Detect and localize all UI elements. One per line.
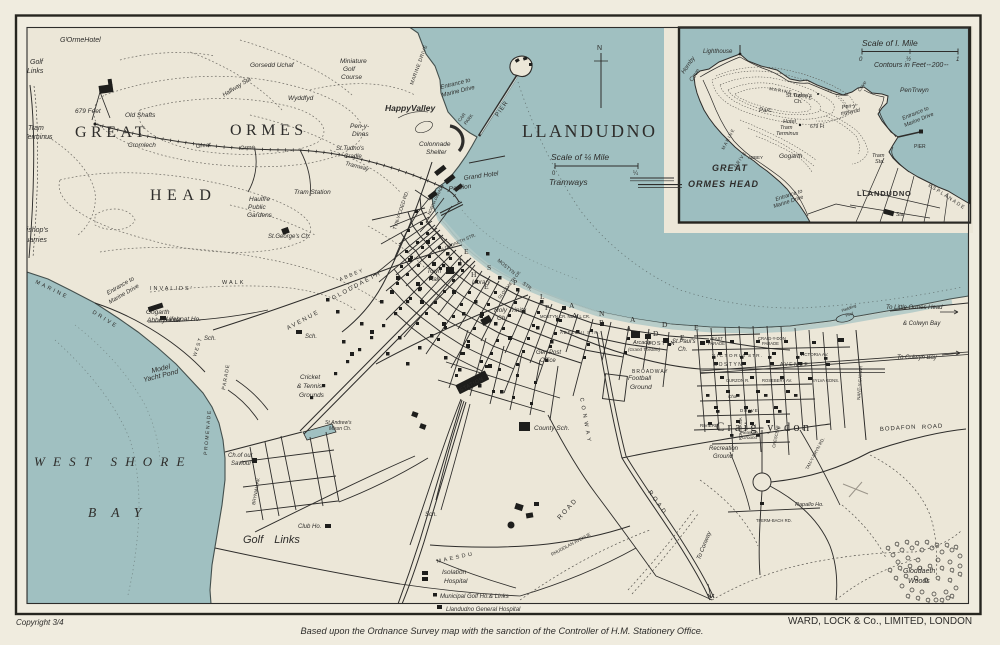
- svg-text:Ground: Ground: [713, 454, 734, 460]
- svg-text:MOSTYN CR. NEVILL CR.: MOSTYN CR. NEVILL CR.: [540, 314, 590, 319]
- svg-text:& Tennis: & Tennis: [297, 383, 323, 390]
- svg-text:Football: Football: [628, 375, 652, 382]
- svg-text:RIVIERE: RIVIERE: [700, 423, 718, 428]
- svg-text:Scale of ¼ Mile: Scale of ¼ Mile: [551, 152, 609, 162]
- svg-text:Gloddaeth: Gloddaeth: [903, 568, 935, 575]
- svg-text:TFERM-BACH RD.: TFERM-BACH RD.: [756, 518, 792, 523]
- svg-text:Miniature: Miniature: [340, 58, 367, 65]
- svg-text:HappyValley: HappyValley: [385, 103, 437, 113]
- svg-text:To Colwyn Bay: To Colwyn Bay: [897, 355, 938, 361]
- svg-text:Grounds: Grounds: [299, 392, 325, 399]
- svg-text:Colonnade: Colonnade: [419, 141, 451, 148]
- svg-text:Woods: Woods: [908, 578, 930, 585]
- svg-text:WALK: WALK: [222, 280, 245, 286]
- svg-text:PenTrwyn: PenTrwyn: [900, 87, 929, 94]
- svg-text:R: R: [599, 318, 604, 327]
- svg-text:Haulfre: Haulfre: [249, 196, 270, 203]
- svg-text:S: S: [487, 263, 491, 272]
- svg-text:Llandudno General Hospital: Llandudno General Hospital: [446, 607, 521, 613]
- svg-text:Scale of I. Mile: Scale of I. Mile: [862, 38, 918, 48]
- svg-text:679 Feet: 679 Feet: [75, 108, 102, 115]
- svg-text:GREAT: GREAT: [712, 163, 748, 173]
- svg-text:Sch.: Sch.: [204, 336, 216, 342]
- svg-text:Gorsedd Uchaf: Gorsedd Uchaf: [250, 62, 295, 69]
- svg-text:Recreation: Recreation: [709, 446, 739, 452]
- svg-text:Ground: Ground: [742, 435, 758, 440]
- svg-text:STR.: STR.: [748, 353, 763, 359]
- svg-text:Municipal Golf Ho.& Links: Municipal Golf Ho.& Links: [440, 594, 509, 600]
- svg-text:E: E: [464, 247, 469, 256]
- svg-text:AVENUE: AVENUE: [780, 362, 809, 368]
- svg-text:LLANDUDNO: LLANDUDNO: [857, 189, 912, 198]
- svg-text:HEAD: HEAD: [150, 187, 216, 204]
- svg-text:CURZON R.: CURZON R.: [726, 378, 749, 383]
- svg-text:Ch.of our: Ch.of our: [228, 453, 254, 459]
- svg-text:Gogarth: Gogarth: [779, 153, 803, 160]
- svg-text:Wyddfyd: Wyddfyd: [288, 95, 314, 102]
- svg-text:ADELPHI STR.: ADELPHI STR.: [560, 330, 601, 335]
- svg-text:A: A: [630, 315, 636, 324]
- svg-text:ORMES: ORMES: [230, 122, 308, 139]
- svg-text:Sch.: Sch.: [305, 334, 317, 340]
- svg-text:PIER: PIER: [914, 144, 926, 150]
- svg-text:N: N: [599, 309, 605, 318]
- svg-text:Rapallo Ho.: Rapallo Ho.: [795, 502, 824, 508]
- svg-text:Sta.: Sta.: [896, 212, 905, 218]
- svg-text:Ch.: Ch.: [794, 99, 803, 105]
- svg-text:To Little Ormes Head: To Little Ormes Head: [886, 305, 943, 311]
- svg-text:E: E: [694, 323, 699, 332]
- svg-text:Golf: Golf: [30, 59, 44, 66]
- svg-text:Saviour: Saviour: [231, 461, 252, 467]
- svg-text:Dinas: Dinas: [352, 131, 369, 138]
- svg-text:Cradle: Cradle: [344, 154, 362, 160]
- svg-text:Shelter: Shelter: [426, 149, 447, 156]
- svg-text:Copyright 3/4: Copyright 3/4: [16, 618, 64, 627]
- svg-text:Golf: Golf: [343, 66, 356, 73]
- svg-text:Tramways: Tramways: [549, 177, 588, 187]
- svg-text:Ch.: Ch.: [678, 347, 687, 353]
- svg-text:DRIVE: DRIVE: [740, 408, 759, 413]
- svg-text:A: A: [569, 301, 575, 310]
- svg-text:P: P: [545, 303, 549, 312]
- svg-text:Hall: Hall: [429, 277, 440, 283]
- svg-text:Town: Town: [427, 269, 442, 275]
- svg-text:Gardens: Gardens: [247, 212, 273, 219]
- svg-text:WEST SHORE: WEST SHORE: [34, 454, 193, 469]
- svg-text:MOSTYN: MOSTYN: [646, 341, 676, 347]
- svg-text:BROADWAY: BROADWAY: [632, 369, 669, 375]
- svg-text:Tram: Tram: [28, 125, 44, 132]
- svg-text:1: 1: [956, 57, 959, 63]
- svg-text:County Sch.: County Sch.: [534, 425, 570, 432]
- svg-text:SYLVA GDNS.: SYLVA GDNS.: [812, 378, 839, 383]
- svg-text:WARD, LOCK & Co., LIMITED, LON: WARD, LOCK & Co., LIMITED, LONDON: [788, 616, 972, 627]
- svg-text:Sta.: Sta.: [875, 159, 885, 165]
- svg-text:Lifeboat Ho.: Lifeboat Ho.: [166, 316, 201, 323]
- svg-text:T: T: [458, 257, 463, 266]
- svg-text:VICTORIA: VICTORIA: [712, 353, 747, 359]
- svg-text:ORMES HEAD: ORMES HEAD: [688, 179, 759, 189]
- svg-text:Contours in Feet -- 200 --: Contours in Feet -- 200 --: [874, 62, 949, 69]
- svg-text:Holy Trinity: Holy Trinity: [494, 307, 527, 314]
- svg-text:Cricket: Cricket: [300, 374, 321, 381]
- svg-text:Office: Office: [540, 358, 556, 364]
- svg-text:Public: Public: [248, 204, 266, 211]
- svg-text:Isolation: Isolation: [442, 569, 467, 576]
- svg-text:H: H: [471, 270, 477, 279]
- svg-text:ABBEY: ABBEY: [748, 155, 763, 160]
- svg-text:MOSTYN: MOSTYN: [713, 362, 743, 368]
- svg-text:A: A: [626, 324, 632, 333]
- svg-text:LLANDUDNO: LLANDUDNO: [522, 121, 657, 141]
- svg-text:Gogarth: Gogarth: [146, 309, 170, 316]
- svg-text:L: L: [540, 292, 545, 301]
- svg-text:GREAT: GREAT: [75, 124, 149, 141]
- svg-text:St.George's Ch.: St.George's Ch.: [268, 234, 311, 240]
- svg-text:Missn Ch.: Missn Ch.: [329, 426, 351, 432]
- svg-text:Pen-y-: Pen-y-: [350, 123, 370, 130]
- svg-text:Hospital: Hospital: [444, 578, 468, 585]
- svg-text:& Colwyn Bay: & Colwyn Bay: [903, 321, 941, 327]
- svg-text:Course: Course: [341, 74, 362, 81]
- svg-text:Parc.: Parc.: [759, 108, 773, 114]
- svg-text:N: N: [597, 45, 602, 52]
- svg-text:Cha.: Cha.: [728, 394, 738, 399]
- svg-text:Library: Library: [472, 280, 491, 286]
- svg-text:St.Tudno's: St.Tudno's: [336, 146, 364, 152]
- svg-text:Craig-y-don: Craig-y-don: [716, 420, 812, 434]
- svg-text:PARADE: PARADE: [762, 341, 779, 346]
- svg-text:679 Ft: 679 Ft: [810, 124, 825, 130]
- svg-text:INVALIDS': INVALIDS': [150, 286, 194, 292]
- svg-text:Orme: Orme: [240, 145, 256, 152]
- svg-text:Tram Station: Tram Station: [294, 189, 331, 196]
- svg-text:Based upon the Ordnance Survey: Based upon the Ordnance Survey map with …: [301, 626, 704, 636]
- svg-text:Lighthouse: Lighthouse: [703, 49, 733, 55]
- svg-text:BAY: BAY: [88, 505, 156, 520]
- svg-text:Golf Links: Golf Links: [243, 534, 300, 546]
- svg-text:Gen.Post: Gen.Post: [536, 350, 561, 356]
- svg-text:Club Ho.: Club Ho.: [298, 524, 321, 530]
- svg-text:VICTORIA AV.: VICTORIA AV.: [800, 352, 828, 357]
- svg-text:PARADE: PARADE: [708, 341, 725, 346]
- svg-text:Links: Links: [27, 68, 44, 75]
- svg-text:Old Shafts: Old Shafts: [125, 112, 156, 119]
- svg-text:Ground: Ground: [630, 384, 652, 391]
- svg-text:GᵗOrmeHotel: GᵗOrmeHotel: [60, 37, 101, 44]
- svg-text:Cromlech: Cromlech: [128, 142, 156, 149]
- svg-text:Terminus: Terminus: [24, 134, 53, 141]
- svg-text:Ch.: Ch.: [497, 315, 507, 322]
- svg-text:ROSEBERY AV.: ROSEBERY AV.: [762, 378, 792, 383]
- svg-text:Terminus: Terminus: [776, 131, 799, 137]
- svg-text:D: D: [653, 329, 659, 338]
- svg-text:Sch.: Sch.: [425, 512, 437, 518]
- svg-text:D: D: [662, 320, 668, 329]
- svg-text:(Grand Theatre): (Grand Theatre): [628, 347, 661, 352]
